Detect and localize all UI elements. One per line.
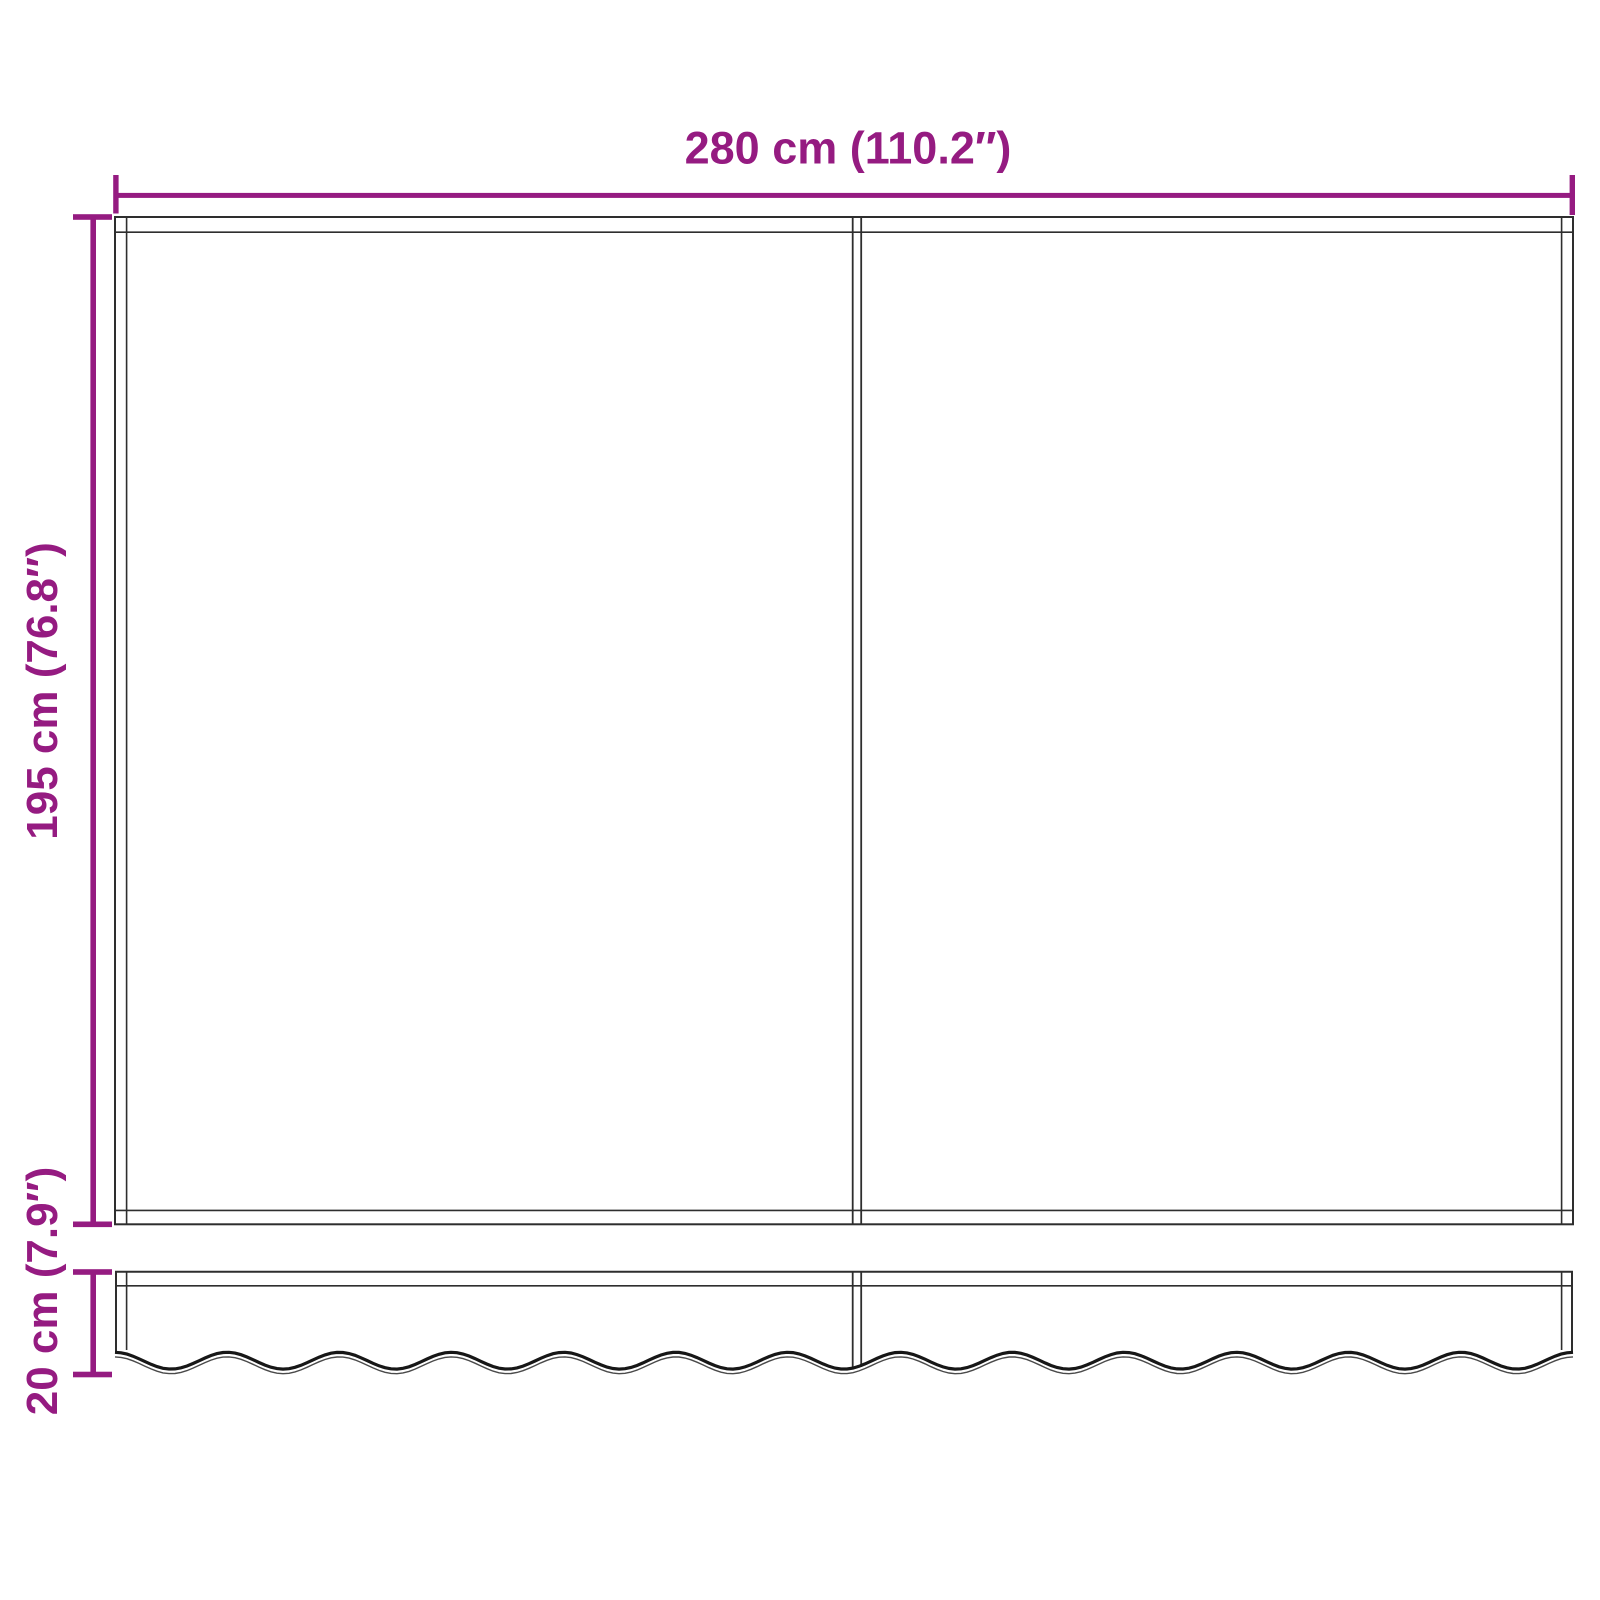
svg-text:280 cm (110.2″): 280 cm (110.2″) — [685, 123, 1012, 174]
svg-text:195 cm (76.8″): 195 cm (76.8″) — [18, 542, 67, 839]
svg-text:20 cm (7.9″): 20 cm (7.9″) — [18, 1167, 67, 1416]
